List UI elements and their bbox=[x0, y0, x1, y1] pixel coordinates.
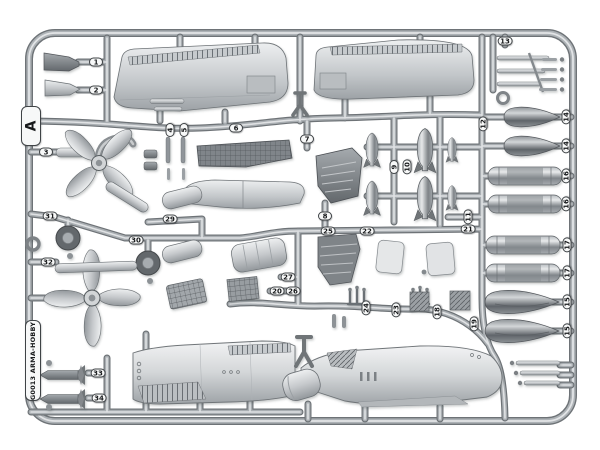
wing-upper-left-part bbox=[114, 43, 288, 111]
bomb-parts bbox=[364, 129, 459, 221]
wing-upper-right-part bbox=[314, 40, 474, 99]
exhaust-stack-part bbox=[348, 286, 366, 304]
rocket-parts bbox=[40, 360, 85, 410]
propeller-lower-part bbox=[30, 236, 154, 360]
sprue-letter-badge: A bbox=[21, 106, 41, 146]
spinner-cone-parts bbox=[44, 53, 80, 96]
product-code-badge: G0013 ARMA-HOBBY bbox=[25, 320, 41, 401]
radiator-grille-dark-part bbox=[197, 140, 292, 167]
small-rod-parts-bottom-right bbox=[510, 361, 560, 385]
radiator-duct-part bbox=[316, 148, 362, 203]
exhaust-and-pin-parts bbox=[144, 99, 185, 180]
product-code: G0013 ARMA-HOBBY bbox=[29, 321, 37, 399]
sprue-photo: 1234567891011121314141616171715152125222… bbox=[0, 0, 600, 450]
sprue-letter: A bbox=[23, 121, 39, 132]
center-cluster-parts bbox=[227, 234, 470, 328]
tail-wheel-yoke-part bbox=[296, 337, 312, 366]
drop-tank-parts-lower bbox=[485, 236, 560, 343]
fuselage-half-right-part bbox=[301, 346, 502, 407]
drop-tank-parts-upper bbox=[488, 107, 562, 213]
fuselage-half-left-part bbox=[133, 341, 295, 404]
gun-barrel-parts bbox=[497, 53, 564, 104]
sprue-rendering bbox=[0, 0, 600, 450]
